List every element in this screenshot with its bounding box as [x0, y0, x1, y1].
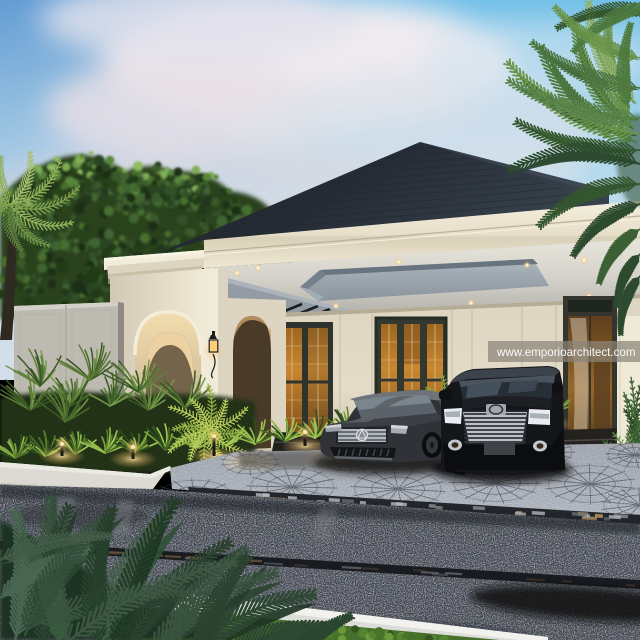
- svg-text:www.emporioarchitect.com: www.emporioarchitect.com: [496, 346, 636, 359]
